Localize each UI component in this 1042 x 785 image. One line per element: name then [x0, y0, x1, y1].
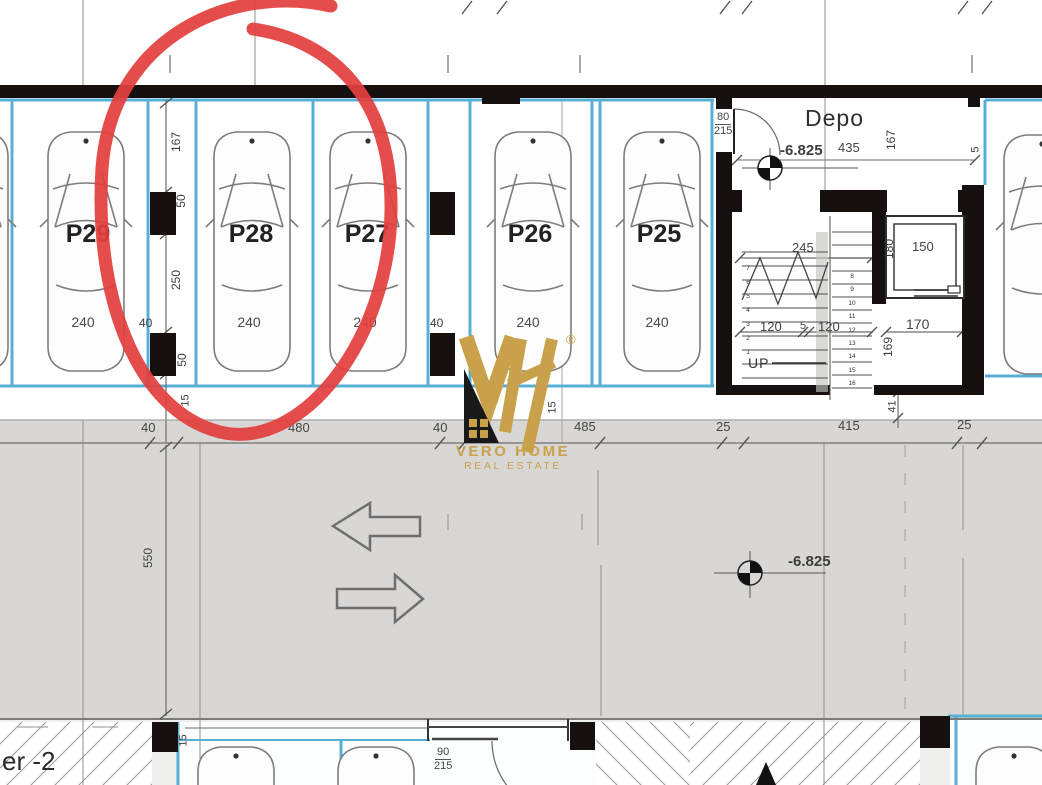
tread-number: 1	[741, 346, 755, 360]
tread-number: 10	[845, 297, 859, 310]
dim-415: 415	[838, 419, 860, 432]
dim-40: 40	[141, 421, 155, 434]
dim-25: 25	[957, 418, 971, 431]
dim-550: 550	[142, 538, 154, 578]
car-icon-p28	[206, 132, 298, 371]
door-width: 90	[435, 746, 451, 760]
level-name-label: er -2	[2, 748, 55, 774]
tread-number: 9	[845, 283, 859, 296]
parking-floor-plan: P29 P28 P27 P26 P25 240 240 240 240 240 …	[0, 0, 1042, 785]
dim-245: 245	[792, 241, 814, 254]
dim-15: 15	[548, 388, 559, 428]
tread-number: 6	[741, 276, 755, 290]
registered-mark-icon: ®	[566, 333, 576, 346]
dim-167: 167	[170, 122, 182, 162]
depo-door-size: 80 215	[714, 111, 732, 137]
car-icon-p25	[616, 132, 708, 371]
dim-strip-40: 40	[430, 317, 443, 329]
ramp-hatch	[690, 722, 920, 785]
stall-label-p29: P29	[55, 222, 121, 247]
elevator	[886, 216, 964, 298]
dim-40: 40	[433, 421, 447, 434]
elevator-depth: 180	[883, 229, 895, 269]
logo-name: VERO HOME	[448, 444, 578, 459]
stall-size: 240	[640, 315, 674, 329]
plan-linework	[0, 0, 1042, 785]
dim-strip-40: 40	[139, 317, 152, 329]
dim-480: 480	[288, 421, 310, 434]
dim-25: 25	[716, 420, 730, 433]
stall-label-p27: P27	[334, 222, 400, 247]
tread-number: 8	[845, 270, 859, 283]
dim-485: 485	[574, 420, 596, 433]
dim-50: 50	[176, 340, 188, 380]
dim-5: 5	[971, 130, 982, 170]
dim-15: 15	[181, 381, 192, 421]
stall-size: 240	[66, 315, 100, 329]
tread-number: 12	[845, 324, 859, 337]
stall-size: 240	[511, 315, 545, 329]
dim-435: 435	[838, 141, 860, 154]
bottom-door-size: 90 215	[434, 746, 452, 772]
tread-number: 3	[741, 318, 755, 332]
tread-number: 16	[845, 377, 859, 390]
dim-169: 169	[882, 327, 894, 367]
tread-number: 5	[741, 290, 755, 304]
stall-label-p26: P26	[497, 222, 563, 247]
elevator-width: 150	[912, 240, 934, 253]
dim-120: 120	[818, 320, 840, 333]
room-label-depo: Depo	[805, 107, 864, 130]
door-height: 215	[434, 760, 452, 772]
stair-tread-numbers-left: 7654321	[741, 262, 755, 360]
dim-250: 250	[170, 260, 182, 300]
stall-label-p25: P25	[626, 222, 692, 247]
stall-label-p28: P28	[218, 222, 284, 247]
dim-50: 50	[175, 181, 187, 221]
tread-number: 4	[741, 304, 755, 318]
dim-41: 41	[888, 387, 899, 427]
stair-tread-numbers-right: 8910111213141516	[845, 270, 859, 391]
stall-size: 240	[232, 315, 266, 329]
dim-120: 120	[760, 320, 782, 333]
car-icon-p27	[322, 132, 414, 371]
car-icon-p29	[40, 132, 132, 371]
tread-number: 11	[845, 310, 859, 323]
tread-number: 7	[741, 262, 755, 276]
tread-number: 2	[741, 332, 755, 346]
logo-tagline: REAL ESTATE	[448, 461, 578, 472]
dim-15: 15	[179, 721, 190, 761]
stall-size: 240	[348, 315, 382, 329]
dim-5-stair: 5	[800, 321, 806, 332]
depo-level: -6.825	[780, 143, 823, 158]
dim-167-depo: 167	[885, 120, 897, 160]
door-height: 215	[714, 125, 732, 137]
column	[150, 192, 176, 235]
door-width: 80	[715, 111, 731, 125]
aisle-level: -6.825	[788, 554, 831, 569]
tread-number: 14	[845, 350, 859, 363]
top-wall	[0, 85, 1042, 98]
tread-number: 13	[845, 337, 859, 350]
tread-number: 15	[845, 364, 859, 377]
dim-170: 170	[906, 317, 929, 331]
